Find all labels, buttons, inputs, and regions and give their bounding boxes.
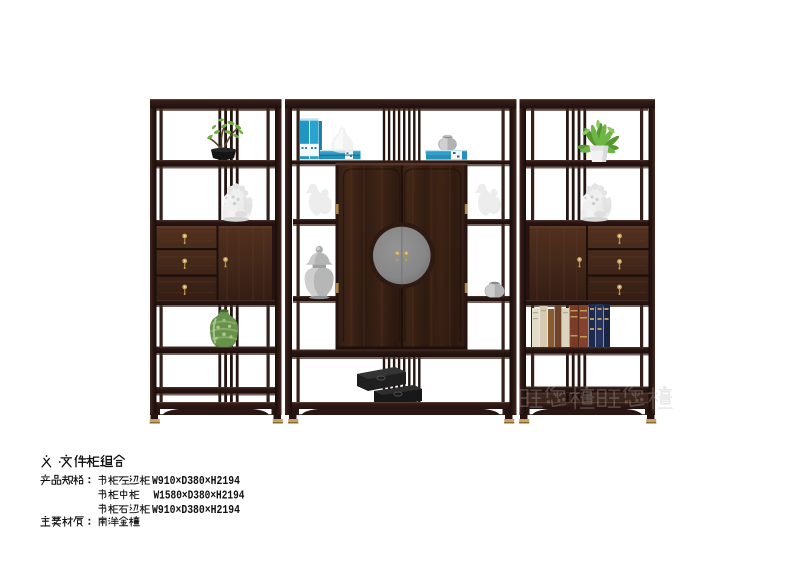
svg-text:W1580×D380×H2194: W1580×D380×H2194: [154, 489, 245, 502]
svg-text:W910×D380×H2194: W910×D380×H2194: [152, 504, 240, 517]
svg-text:W910×D380×H2194: W910×D380×H2194: [152, 475, 240, 488]
